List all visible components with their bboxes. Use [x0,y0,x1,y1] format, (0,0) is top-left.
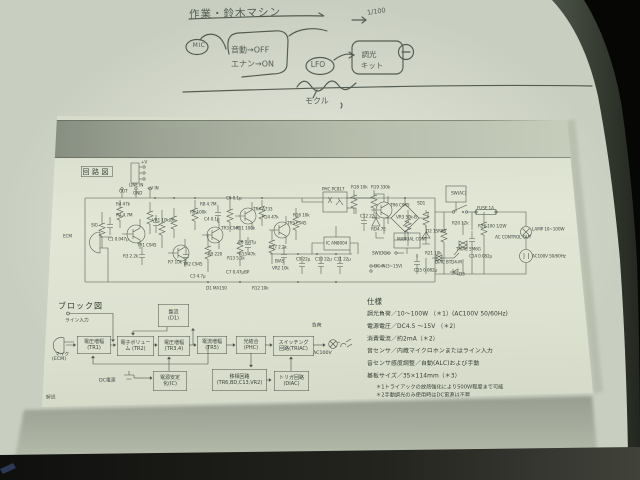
desk-photo: 作業・鈴木マシン 1/100 MIC 音動→OFF エナン→ON LFO 調光 … [0,0,640,480]
schematic-graphics [40,114,596,411]
printed-sheet: 回路図 ブロック図 ライン入力 マイク (ECM) 負荷 AC100V DC電源… [40,114,596,411]
schematic-wires [85,163,533,283]
block-diagram-lines [53,312,352,382]
